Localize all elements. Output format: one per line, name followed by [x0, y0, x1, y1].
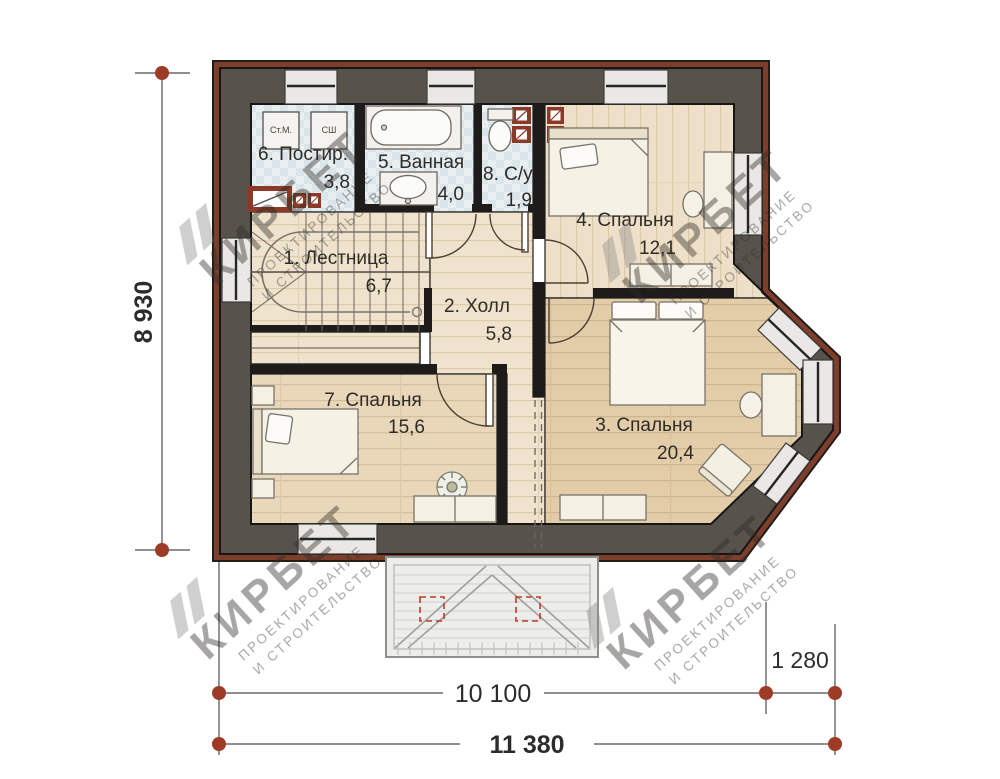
room-area-stairs: 6,7: [366, 276, 392, 297]
bed-bedroom7: [253, 409, 358, 474]
dim-width-main: 10 100: [455, 680, 531, 708]
room-area-bathroom: 4,0: [438, 184, 464, 205]
dimension-left: 8 930: [130, 66, 190, 557]
window-bathroom: [427, 70, 475, 104]
floor-plan-drawing: 6. Постир. 3,8 5. Ванная 4,0 8. С/у 1,9 …: [0, 0, 1000, 779]
room-area-bedroom7: 15,6: [388, 417, 425, 438]
room-area-bedroom3: 20,4: [657, 443, 694, 464]
room-area-hall: 5,8: [486, 324, 512, 345]
wardrobe: [251, 332, 420, 364]
window-bedroom4-top: [604, 70, 668, 104]
window-bay-right: [803, 360, 833, 424]
chair-bedroom3: [740, 392, 762, 418]
room-label-bedroom3: 3. Спальня: [595, 415, 692, 436]
toilet: [488, 109, 513, 151]
window-laundry: [285, 70, 337, 104]
nightstand-bedroom7-top: [252, 386, 274, 405]
dim-height: 8 930: [130, 281, 158, 344]
nightstand-bedroom7-bottom: [252, 479, 274, 498]
room-area-wc: 1,9: [506, 190, 532, 211]
room-label-hall: 2. Холл: [444, 296, 510, 317]
bathtub: [366, 106, 461, 149]
room-label-bathroom: 5. Ванная: [378, 152, 464, 173]
washer-label: Ст.М.: [270, 125, 292, 135]
floor-plan-page: 6. Постир. 3,8 5. Ванная 4,0 8. С/у 1,9 …: [0, 0, 1000, 779]
room-label-bedroom7: 7. Спальня: [324, 390, 421, 411]
porch-roof: [386, 557, 598, 657]
room-label-wc: 8. С/у: [483, 164, 533, 185]
desk-bedroom7: [414, 496, 496, 522]
dim-width-total: 11 380: [489, 731, 564, 759]
desk-bedroom3: [762, 374, 796, 436]
dim-width-bay: 1 280: [771, 647, 829, 673]
dresser-bedroom3: [560, 495, 646, 520]
bed-bedroom4: [549, 128, 648, 216]
